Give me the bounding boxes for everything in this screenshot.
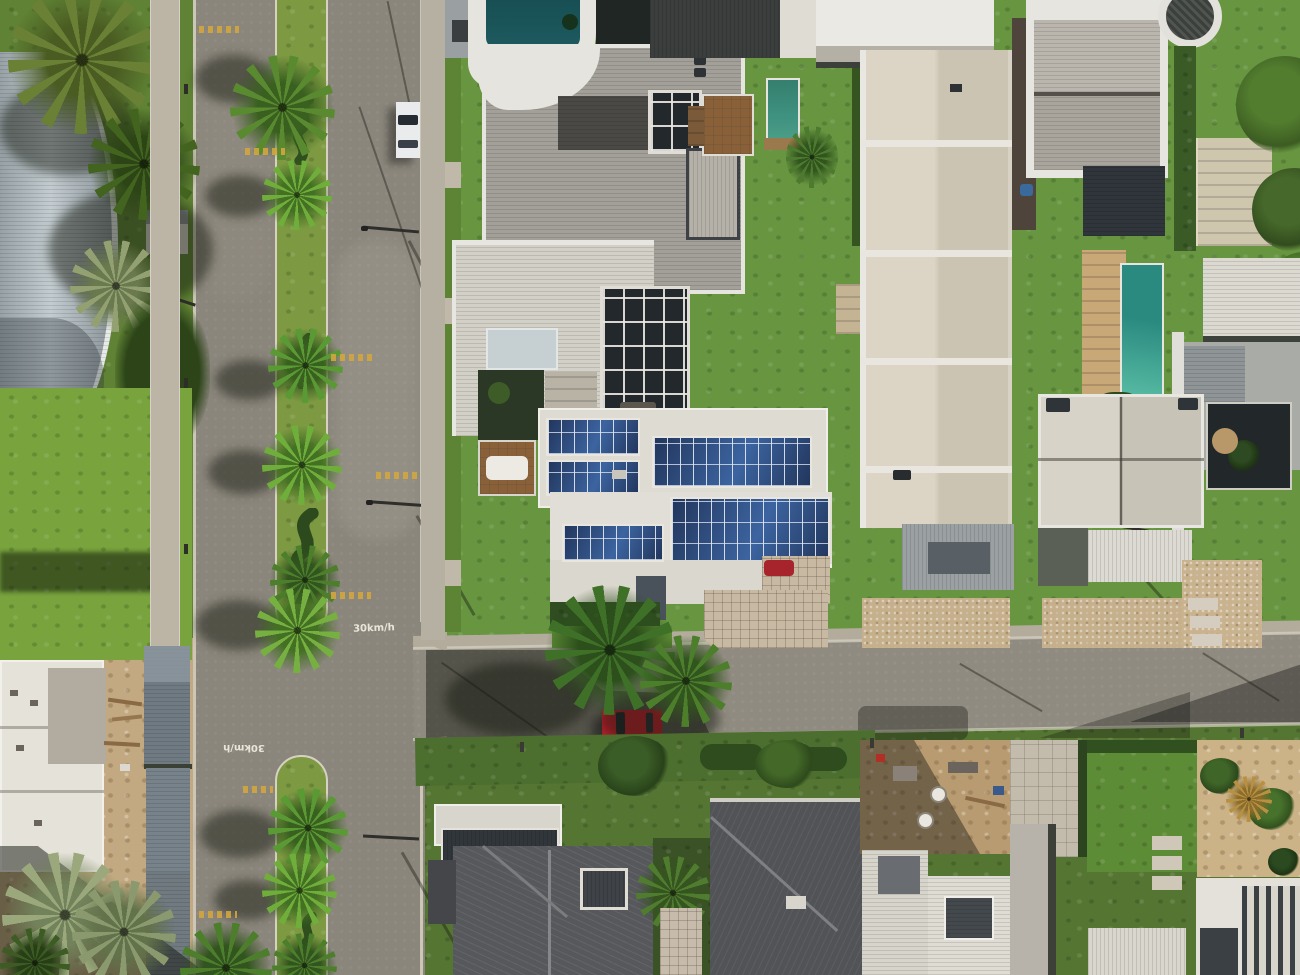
blue-tarp (993, 786, 1004, 795)
chimney (786, 896, 806, 909)
hip-roof (710, 798, 878, 975)
red-car-in-driveway (764, 560, 794, 576)
ac-unit (694, 68, 706, 77)
garage-roof (1088, 530, 1192, 582)
palm-tree (88, 108, 200, 220)
boundary-hedge (1174, 46, 1196, 251)
street-tree (598, 736, 672, 796)
rumble-strip (331, 354, 373, 361)
solar-panel-array (562, 524, 664, 562)
gray-metal-roof (146, 768, 190, 872)
golden-palm (1226, 776, 1272, 822)
driveway-cut (445, 560, 461, 586)
crate (893, 766, 917, 781)
side-roof (428, 860, 456, 924)
roof-drain-line (1038, 458, 1204, 461)
solar-panel-array (546, 418, 640, 456)
utility-pole (870, 738, 874, 748)
courtyard-garden (478, 370, 544, 440)
rebar-marks (10, 690, 18, 696)
courtyard-sand-circle (1212, 428, 1238, 454)
east-sidewalk (421, 0, 445, 640)
utility-post (184, 378, 188, 388)
stepping-stone (1190, 616, 1220, 628)
palm-tree (640, 635, 732, 727)
garden-path (660, 908, 702, 975)
plant-row (1078, 740, 1087, 857)
pale-blue-roof (486, 328, 558, 370)
white-ribbed-roof (1203, 258, 1300, 338)
avenue-worn-patch (335, 240, 420, 540)
roof-division-band (860, 466, 1012, 473)
roof-vent (612, 470, 626, 479)
courtyard-plant (488, 382, 510, 404)
pergola-shade-interior (928, 542, 990, 574)
stepping-stone (1152, 876, 1182, 890)
white-roof-edge (780, 0, 816, 58)
rumble-strip (199, 911, 237, 918)
street-tree (755, 740, 819, 788)
gray-metal-roof-panel (144, 646, 190, 682)
paver-driveway (704, 590, 828, 648)
rumble-strip (376, 472, 418, 479)
roof-antenna (893, 470, 911, 480)
construction-concrete-wing (48, 668, 106, 764)
blue-object (1020, 184, 1033, 196)
stepping-stone (1192, 634, 1222, 646)
flat-roof-gray (1010, 824, 1048, 975)
red-equipment (876, 754, 885, 762)
rebar-marks (16, 745, 24, 751)
solar-panel-array (652, 436, 812, 488)
pergola-slats (1242, 886, 1300, 975)
median-palm-tree (268, 328, 343, 403)
crate (948, 762, 978, 773)
utility-post (184, 84, 188, 94)
pitched-roof-panel (1034, 20, 1160, 92)
balcony-louvers (686, 148, 740, 240)
debris (120, 764, 130, 771)
dark-roof-section (558, 96, 648, 150)
street-lamp-head (361, 226, 368, 231)
dormer (580, 868, 628, 910)
side-court (1038, 528, 1088, 586)
roof-division-band (860, 140, 1012, 147)
stepping-stone (1152, 856, 1182, 870)
backyard-lawn (1087, 740, 1197, 872)
louvered-pergola (1083, 166, 1165, 236)
garden-shrub (1268, 848, 1300, 876)
white-car (396, 102, 420, 158)
roof-gap (1048, 824, 1056, 975)
median-palm-tree (262, 425, 342, 505)
west-sidewalk (150, 0, 180, 662)
shadow-gap (596, 0, 652, 46)
ac-unit (1046, 398, 1070, 412)
roof-vent (950, 84, 962, 92)
pool-plant (562, 14, 578, 30)
stepping-stone (1188, 598, 1218, 610)
hedge-top (1087, 740, 1197, 753)
charcoal-flat-roof (650, 0, 782, 58)
white-car-rear-window (398, 140, 418, 148)
ac-unit (1178, 398, 1198, 410)
rumble-strip (331, 592, 371, 599)
garden-stair (688, 106, 704, 146)
louver-window (944, 896, 994, 940)
lap-pool (1120, 263, 1164, 405)
white-car-windshield (398, 115, 418, 125)
outdoor-daybed (486, 456, 528, 480)
speed-limit-marking: 30km/h (352, 623, 396, 635)
median-palm-tree (230, 55, 335, 160)
driveway-cut (445, 162, 461, 188)
utility-post (184, 544, 188, 554)
stepping-stone (1152, 836, 1182, 850)
white-flat-roof (816, 0, 994, 46)
hedge-shadow-band (0, 552, 172, 592)
rumble-strip (199, 26, 239, 33)
construction-roof-seam (0, 790, 104, 793)
median-palm-tree (262, 853, 337, 928)
roof-ridge (548, 850, 551, 975)
pitched-roof-panel (1034, 96, 1160, 170)
hip-roof (453, 846, 653, 975)
roof-dark-band (878, 856, 920, 894)
timber-slat-feature (702, 94, 754, 156)
rebar-marks (30, 700, 38, 706)
dark-roof-section (1200, 928, 1238, 975)
palm-tree (786, 126, 838, 188)
street-lamp-head (366, 500, 373, 505)
white-house-roof (1088, 928, 1186, 975)
palm-tree (72, 880, 176, 975)
big-roof-se (1038, 394, 1204, 528)
storage-drum (917, 812, 934, 829)
speed-limit-marking: 30km/h (222, 742, 266, 752)
front-gate (452, 20, 468, 42)
utility-pole (520, 742, 524, 752)
roof-division-band (860, 250, 1012, 257)
median-palm-tree (262, 160, 332, 230)
utility-pole (1240, 728, 1244, 738)
rebar-marks (34, 820, 42, 826)
aerial-photo: 30km/h 30km/h (0, 0, 1300, 975)
roof-division-band (860, 358, 1012, 365)
storage-drum (930, 786, 947, 803)
rumble-strip (243, 786, 273, 793)
median-palm-tree (255, 588, 340, 673)
gravel-driveway (862, 598, 1010, 648)
gravel-driveway (1042, 598, 1182, 648)
rumble-strip (245, 148, 285, 155)
long-cream-roof (860, 50, 1012, 528)
